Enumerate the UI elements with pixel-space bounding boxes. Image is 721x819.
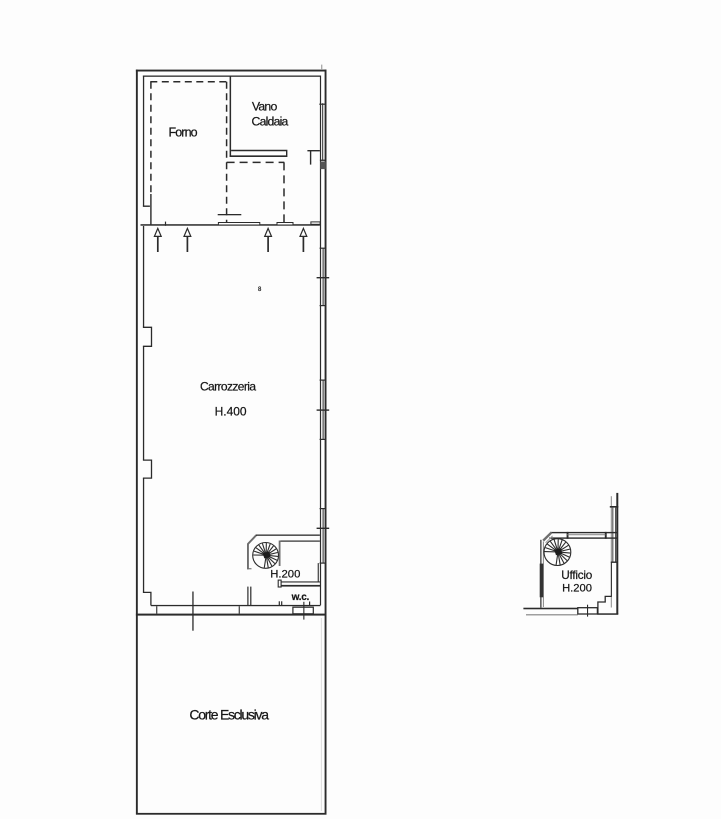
svg-text:w.c.: w.c.: [291, 592, 310, 603]
svg-text:Carrozzeria: Carrozzeria: [200, 379, 256, 393]
svg-text:Ufficio: Ufficio: [561, 569, 593, 582]
svg-text:Forno: Forno: [169, 126, 198, 140]
svg-text:H.200: H.200: [270, 568, 300, 580]
svg-text:Caldaia: Caldaia: [252, 114, 289, 128]
svg-text:H.200: H.200: [562, 582, 592, 594]
svg-text:H.400: H.400: [215, 405, 247, 419]
svg-text:Vano: Vano: [252, 99, 278, 113]
svg-text:Corte Esclusiva: Corte Esclusiva: [189, 707, 269, 723]
